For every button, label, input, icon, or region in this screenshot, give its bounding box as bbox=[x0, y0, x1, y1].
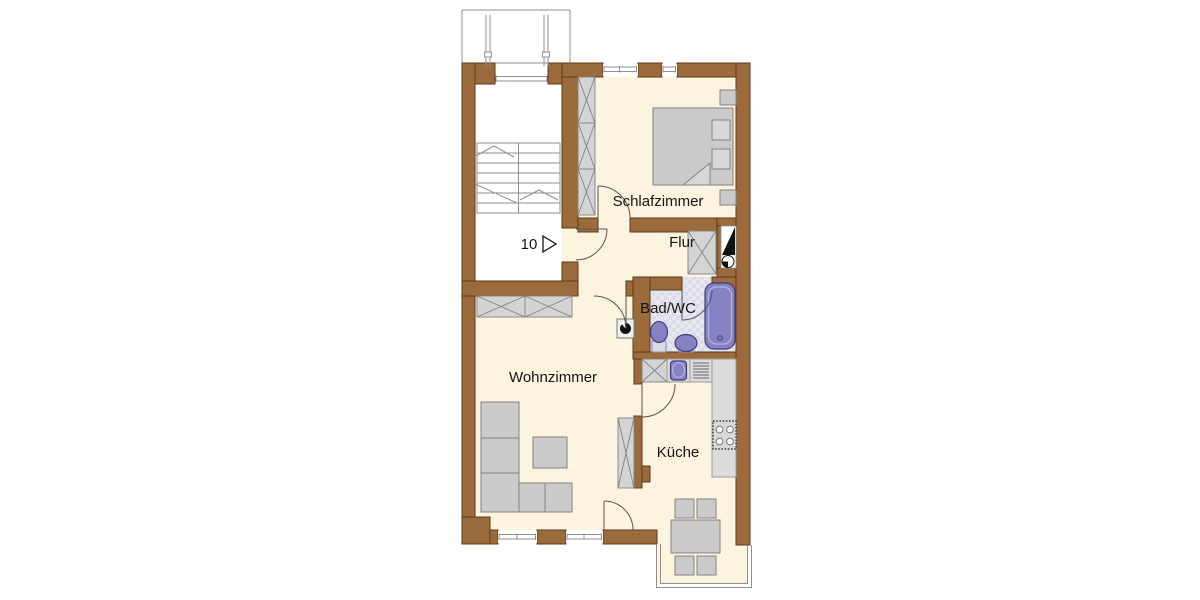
floor-plan-drawing: Schlafzimmer Flur Bad/WC Wohnzimmer Küch… bbox=[0, 0, 1200, 600]
apartment-number-text: 10 bbox=[521, 236, 538, 253]
washbasin bbox=[651, 322, 668, 353]
chair bbox=[697, 556, 716, 575]
room-label-bathroom: Bad/WC bbox=[640, 300, 696, 317]
chair bbox=[675, 499, 694, 518]
living-room-window-2 bbox=[566, 531, 603, 543]
living-room-sideboard bbox=[477, 296, 572, 317]
burner-icon bbox=[716, 438, 723, 445]
bathtub bbox=[705, 283, 735, 349]
nightstand bbox=[720, 90, 736, 105]
chair bbox=[697, 499, 716, 518]
bedroom-window bbox=[603, 64, 638, 76]
bedroom-wardrobe bbox=[578, 77, 595, 215]
coffee-table bbox=[533, 437, 567, 468]
dining-table bbox=[671, 520, 720, 553]
living-room-window bbox=[498, 531, 537, 543]
elevator-door bbox=[496, 76, 547, 83]
nightstand bbox=[720, 190, 736, 205]
installation-shaft bbox=[721, 226, 736, 268]
room-label-living-room: Wohnzimmer bbox=[509, 369, 597, 386]
apartment-number: 10 bbox=[521, 236, 556, 253]
floor-plan-canvas: Schlafzimmer Flur Bad/WC Wohnzimmer Küch… bbox=[0, 0, 1200, 600]
elevator-shaft bbox=[462, 10, 570, 63]
door-direction-icon bbox=[543, 236, 556, 252]
kitchen-counter bbox=[712, 359, 736, 477]
kitchen-tall-cabinet bbox=[618, 418, 634, 488]
bedroom-window-small bbox=[662, 64, 677, 76]
staircase bbox=[474, 143, 560, 213]
chair bbox=[675, 556, 694, 575]
toilet bbox=[675, 335, 697, 353]
room-label-bedroom: Schlafzimmer bbox=[613, 193, 704, 210]
drainer bbox=[690, 359, 712, 382]
kitchen-base-cabinet bbox=[642, 359, 667, 382]
room-label-hallway: Flur bbox=[669, 234, 695, 251]
stove bbox=[713, 421, 736, 449]
pillow bbox=[712, 120, 730, 140]
room-label-kitchen: Küche bbox=[657, 444, 700, 461]
elevator bbox=[462, 10, 570, 63]
pillow bbox=[712, 149, 730, 169]
burner-icon bbox=[727, 438, 734, 445]
kitchen-sink-unit bbox=[667, 359, 690, 382]
burner-icon bbox=[727, 426, 734, 433]
burner-icon bbox=[716, 426, 723, 433]
